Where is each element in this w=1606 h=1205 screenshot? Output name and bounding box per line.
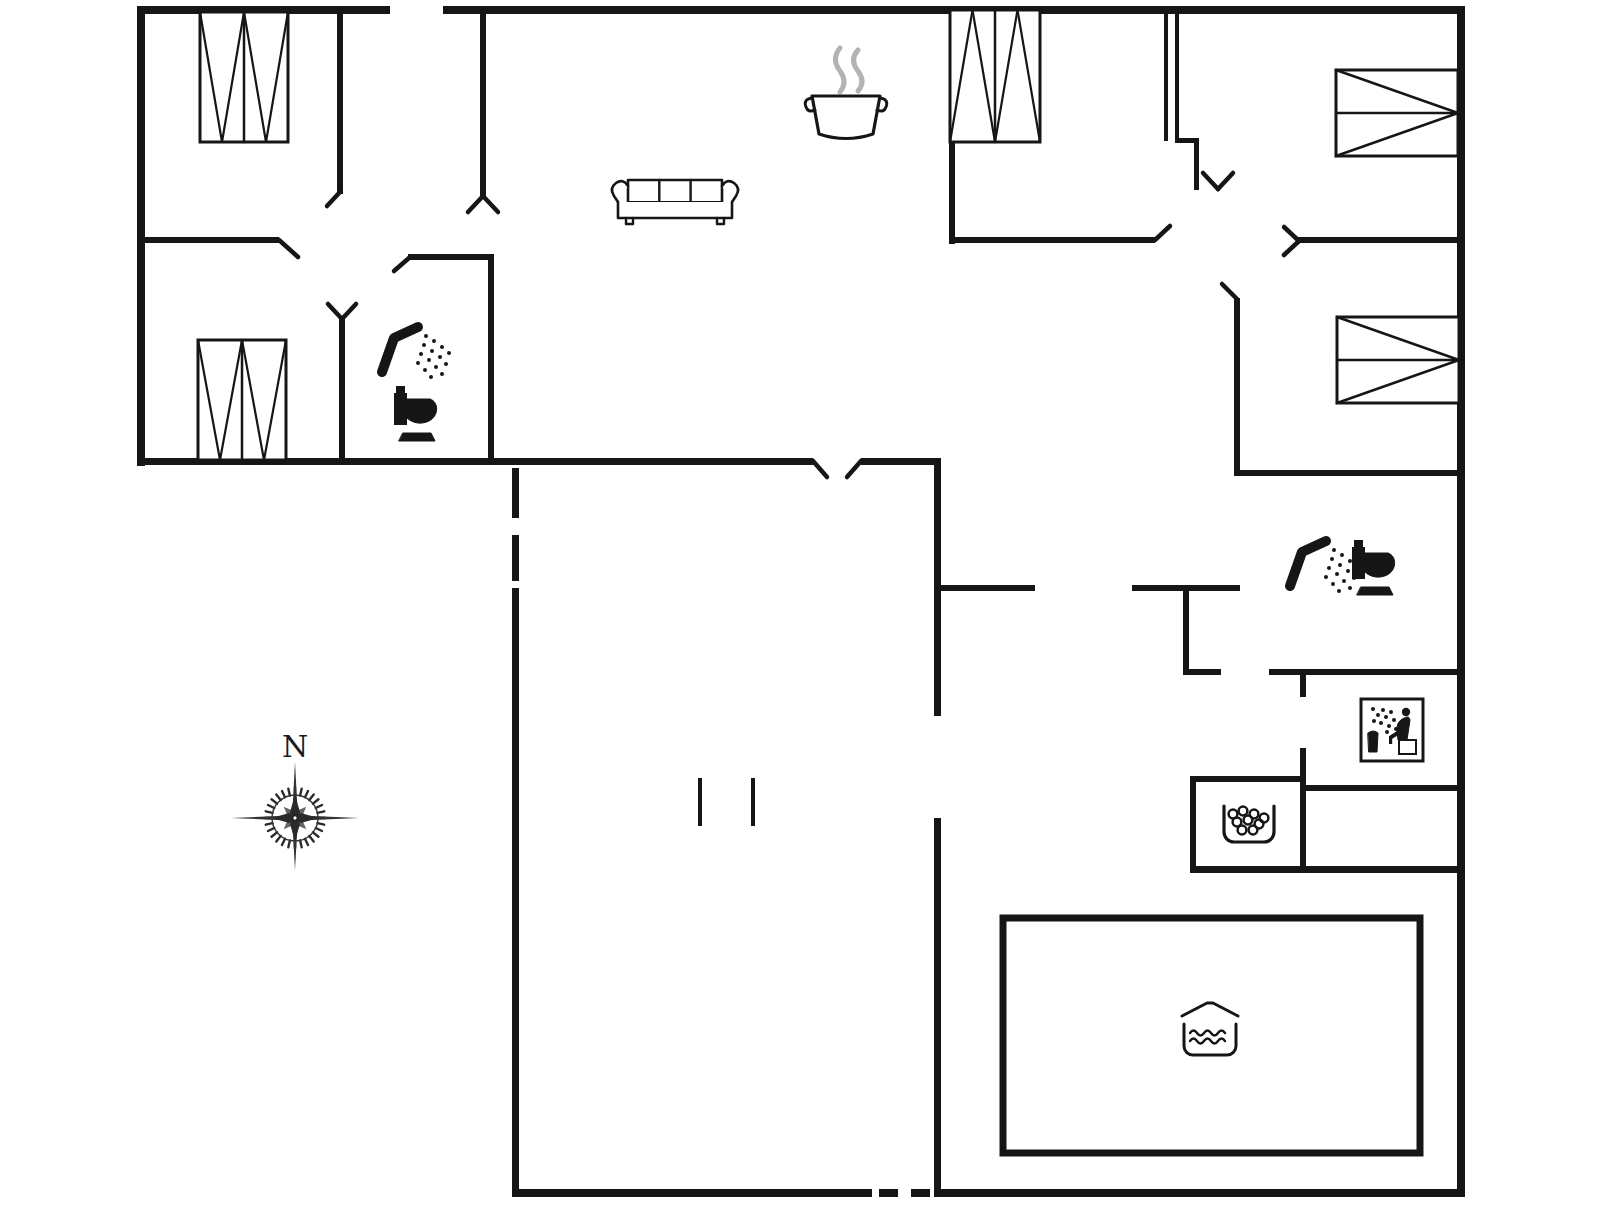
- door-swing-bedroom3: [1155, 226, 1170, 240]
- toilet-icon-right: [1352, 540, 1395, 595]
- bed-bottom-left: [198, 340, 286, 460]
- bedroom2-right-wall: [339, 318, 345, 464]
- outer-wall-right: [1457, 6, 1465, 1197]
- passage-tick-b: [751, 778, 755, 826]
- pool-hall-left-wall: [512, 588, 519, 1197]
- compass-north-label: N: [282, 729, 308, 764]
- bath-right-top-wall: [1234, 470, 1465, 476]
- door-swing-bedroom2b-a: [328, 304, 342, 319]
- lobby-left-wall: [1183, 585, 1189, 675]
- sauna-bottom-wall: [1300, 785, 1465, 791]
- floor-plan: N: [0, 0, 1606, 1205]
- door-swing-hall-b2: [1284, 241, 1299, 255]
- wing-bottom-wall-b: [861, 458, 941, 465]
- lobby-bottom-wall: [1183, 669, 1221, 675]
- outer-wall-bottom-left: [515, 1189, 872, 1197]
- bedroom3-bottom-wall: [949, 237, 1155, 243]
- sofa-icon: [612, 180, 738, 224]
- bed-right-2: [1337, 317, 1459, 403]
- whirlpool-icon: [1224, 806, 1274, 842]
- dashed-wall-vertical-b: [512, 535, 519, 581]
- swimming-pool: [1003, 918, 1420, 1153]
- hall-top-wall-right: [1297, 237, 1465, 243]
- bath-left-right-wall: [488, 254, 494, 464]
- passage-tick-a: [698, 778, 702, 826]
- bedroom4-divider-wall: [1234, 298, 1240, 476]
- dashed-door-bottom-b: [911, 1189, 930, 1197]
- pool-hall-top-wall: [1190, 866, 1465, 873]
- door-swing-bath-left: [394, 258, 409, 271]
- outer-wall-bottom-right: [938, 1189, 1465, 1197]
- mid-vertical-wall-lower: [934, 818, 941, 1197]
- double-door-stub: [1194, 138, 1199, 190]
- bed-top-right: [950, 10, 1040, 142]
- door-swing-hall-a2: [1218, 173, 1233, 189]
- door-swing-living-a: [813, 461, 827, 477]
- entry-divider-wall: [480, 8, 486, 196]
- door-swing-hall-b1: [1284, 227, 1299, 241]
- bedroom1-divider-wall: [337, 8, 343, 194]
- bed-right-1: [1336, 70, 1458, 156]
- dashed-wall-vertical-a: [512, 468, 519, 518]
- double-door-line-a: [1164, 8, 1168, 141]
- door-swing-bedroom4: [1222, 284, 1237, 299]
- door-swing-living-b: [847, 461, 861, 477]
- door-swing-entry-a: [468, 196, 483, 212]
- whirlpool-room-top-wall: [1190, 776, 1306, 782]
- outer-wall-left: [137, 6, 145, 466]
- door-swing-bedroom1: [327, 192, 340, 206]
- door-swing-bedroom2b-b: [342, 304, 356, 319]
- compass-rose: N: [231, 729, 359, 870]
- shower-icon-left: [382, 327, 451, 379]
- bed-top-left: [200, 12, 288, 142]
- pool-water-icon: [1182, 1003, 1238, 1055]
- sauna-left-wall-a: [1300, 669, 1306, 697]
- cooking-pot-icon: [805, 48, 887, 139]
- hall-bottom-wall-left: [934, 585, 1035, 591]
- shower-icon-right: [1290, 541, 1359, 593]
- double-door-line-b: [1175, 8, 1179, 141]
- sauna-left-wall-b: [1300, 748, 1306, 872]
- floor-plan-canvas: N: [0, 0, 1606, 1205]
- sauna-icon: [1361, 699, 1423, 761]
- bedroom2-top-wall: [137, 237, 279, 243]
- dashed-door-bottom-a: [879, 1189, 898, 1197]
- door-swing-bedroom2: [279, 240, 298, 257]
- door-swing-entry-b: [483, 196, 498, 212]
- bath-left-top-wall: [408, 254, 494, 260]
- whirlpool-room-left-wall: [1190, 776, 1196, 872]
- sauna-top-wall: [1269, 669, 1465, 675]
- door-swing-hall-a1: [1203, 173, 1218, 189]
- toilet-icon-left: [394, 386, 437, 441]
